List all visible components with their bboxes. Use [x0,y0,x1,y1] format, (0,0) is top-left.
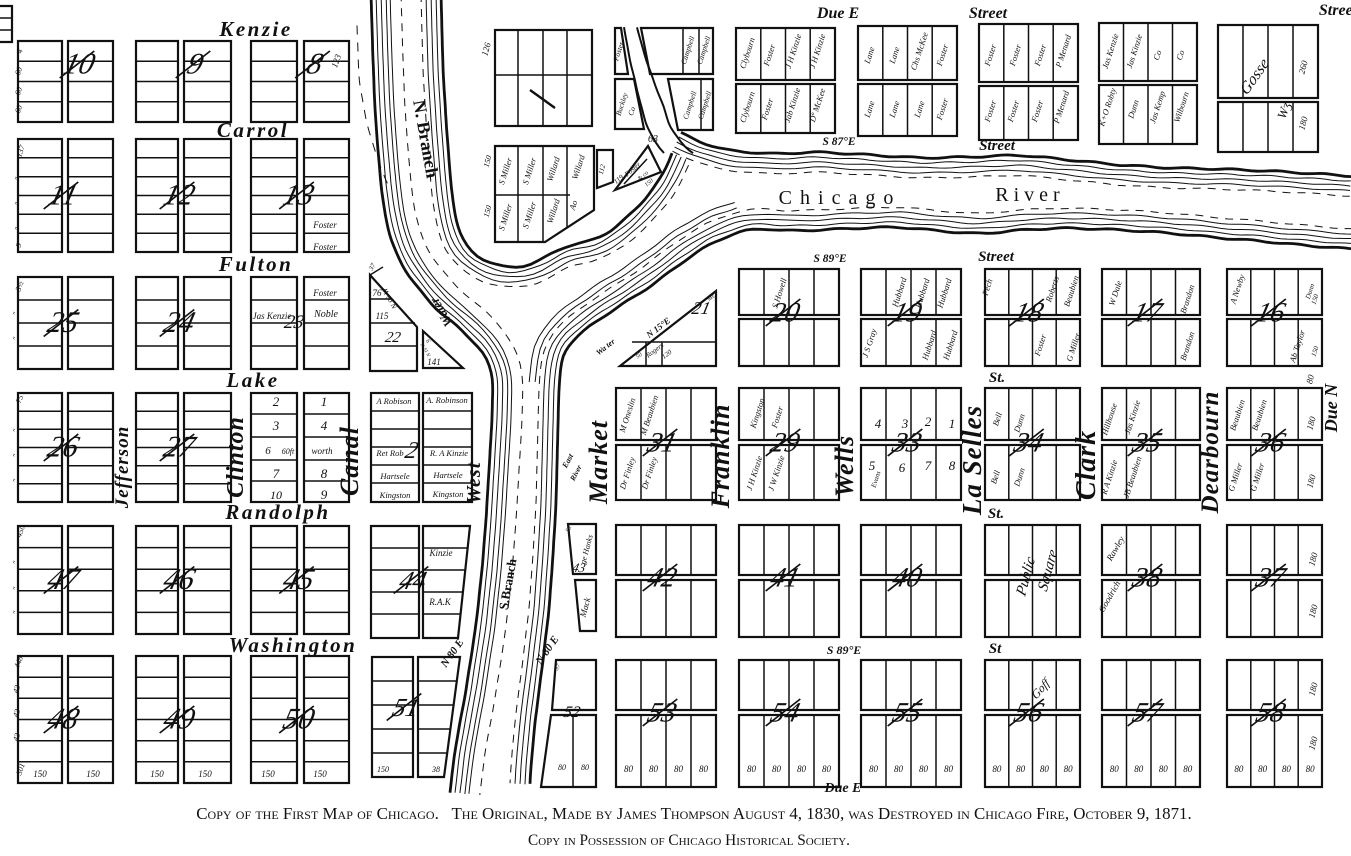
svg-text:80: 80 [1258,764,1268,774]
svg-text:150: 150 [261,769,275,779]
svg-text:Ret Rob: Ret Rob [375,448,403,458]
svg-text:Kingston: Kingston [379,490,411,500]
svg-text:2: 2 [273,394,280,409]
svg-text:Foster: Foster [312,288,337,298]
svg-text:80: 80 [1282,764,1292,774]
svg-text:Lake: Lake [225,368,279,392]
svg-text:Chicago: Chicago [779,187,902,209]
svg-text:3: 3 [901,416,909,431]
svg-text:80: 80 [1234,764,1244,774]
svg-text:80: 80 [1064,764,1074,774]
svg-text:Foster: Foster [312,242,337,252]
svg-text:West: West [463,461,485,504]
svg-text:Jas Kenzie: Jas Kenzie [253,311,292,321]
svg-text:80: 80 [1134,764,1144,774]
svg-text:Canal: Canal [335,426,364,496]
svg-text:60ft: 60ft [282,447,295,456]
svg-text:Foster: Foster [312,220,337,230]
svg-text:R.A.K: R.A.K [428,597,451,607]
svg-text:Clinton: Clinton [223,416,249,498]
svg-text:Market: Market [584,420,613,505]
svg-text:Copy of the First Map of Chica: Copy of the First Map of Chicago. The Or… [196,804,1191,823]
svg-text:80: 80 [1016,764,1026,774]
svg-text:80: 80 [1183,764,1193,774]
svg-text:80: 80 [699,764,709,774]
svg-text:Due N: Due N [1321,383,1341,433]
svg-text:Hartsele: Hartsele [432,470,463,480]
svg-text:S 89°E: S 89°E [827,643,861,657]
svg-text:80: 80 [869,764,879,774]
svg-text:La Selles: La Selles [957,405,987,516]
svg-text:150: 150 [198,769,212,779]
svg-text:150: 150 [313,769,327,779]
svg-text:St: St [989,641,1002,657]
svg-text:Noble: Noble [313,309,338,320]
svg-text:150: 150 [33,769,47,779]
svg-text:8: 8 [949,458,956,473]
svg-text:Jefferson: Jefferson [112,426,133,510]
svg-text:Kenzie: Kenzie [218,17,292,41]
svg-text:2: 2 [925,414,932,429]
svg-text:worth: worth [311,446,333,456]
svg-text:150: 150 [86,769,100,779]
svg-text:150: 150 [150,769,164,779]
svg-text:S 87°E: S 87°E [822,136,855,148]
svg-text:R. A Kinzie: R. A Kinzie [429,448,468,458]
svg-text:4: 4 [321,418,328,433]
svg-text:80: 80 [649,764,659,774]
svg-text:Washington: Washington [229,633,358,657]
svg-text:River: River [995,184,1064,206]
svg-text:1: 1 [321,394,328,409]
svg-text:38: 38 [431,765,440,774]
svg-text:Clark: Clark [1071,430,1102,500]
svg-text:St.: St. [989,370,1005,386]
svg-text:Hartsele: Hartsele [379,471,410,481]
svg-text:80: 80 [944,764,954,774]
svg-text:Due E: Due E [816,5,859,22]
svg-text:80: 80 [624,764,634,774]
svg-text:80: 80 [581,763,589,772]
svg-text:Copy in Possession of Chicago: Copy in Possession of Chicago Historical… [528,832,850,849]
svg-text:80: 80 [558,763,566,772]
svg-text:80: 80 [1110,764,1120,774]
svg-text:A. Robinson: A. Robinson [425,395,468,405]
svg-text:3: 3 [272,418,280,433]
svg-text:Wells: Wells [830,435,859,497]
svg-text:Street: Street [969,5,1008,22]
svg-text:6: 6 [899,460,906,475]
svg-text:4: 4 [875,416,882,431]
svg-text:Dearbourn: Dearbourn [1197,391,1224,515]
svg-text:Kingston: Kingston [432,489,464,499]
svg-text:Randolph: Randolph [224,500,330,524]
svg-text:Street: Street [979,138,1016,154]
svg-text:Street: Street [978,249,1015,265]
svg-text:80: 80 [797,764,807,774]
svg-text:A Robison: A Robison [375,396,411,406]
svg-text:115: 115 [376,311,389,321]
svg-text:141: 141 [427,357,441,367]
svg-text:80: 80 [1159,764,1169,774]
svg-text:80: 80 [992,764,1002,774]
svg-text:Carrol: Carrol [217,118,289,142]
svg-text:8: 8 [321,466,328,481]
svg-text:80: 80 [674,764,684,774]
svg-text:80: 80 [822,764,832,774]
svg-text:80: 80 [772,764,782,774]
svg-text:80: 80 [1306,764,1316,774]
svg-text:St.: St. [988,506,1004,522]
svg-text:S 89°E: S 89°E [813,253,846,265]
svg-text:Franklin: Franklin [706,404,735,510]
svg-text:Street: Street [1319,2,1351,19]
svg-text:80: 80 [919,764,929,774]
svg-text:Fulton: Fulton [218,252,294,276]
svg-text:7: 7 [925,458,932,473]
svg-text:80: 80 [1040,764,1050,774]
svg-text:1: 1 [949,416,956,431]
svg-text:6: 6 [265,445,271,457]
svg-text:Due E: Due E [824,781,862,796]
svg-text:7: 7 [273,466,280,481]
svg-text:Kinzie: Kinzie [428,548,452,558]
svg-text:150: 150 [377,765,389,774]
svg-text:80: 80 [747,764,757,774]
svg-text:80: 80 [894,764,904,774]
